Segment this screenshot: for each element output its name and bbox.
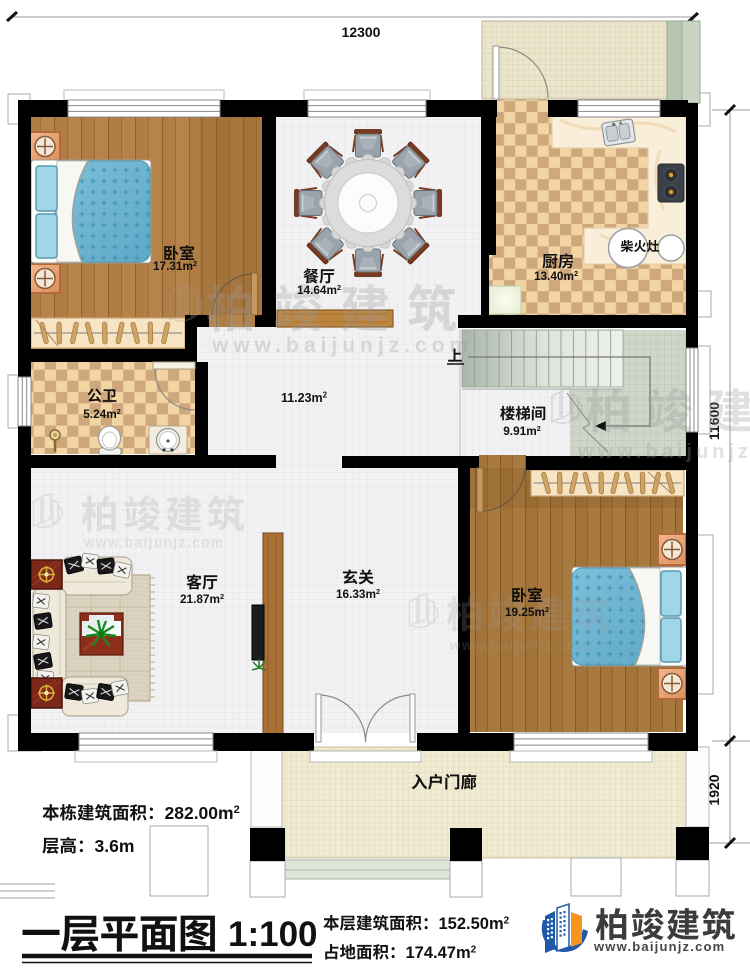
svg-text:19.25m2: 19.25m2 (505, 605, 549, 619)
svg-text:13.40m2: 13.40m2 (534, 269, 578, 283)
svg-text:9.91m2: 9.91m2 (503, 424, 541, 438)
svg-text:柏竣建筑: 柏竣建筑 (585, 373, 750, 442)
svg-text:楼梯间: 楼梯间 (500, 402, 547, 424)
svg-text:上: 上 (447, 345, 462, 366)
svg-text:12300: 12300 (342, 24, 381, 40)
svg-text:www.baijunjz.com: www.baijunjz.com (83, 535, 225, 550)
svg-text:占地面积：174.47m2: 占地面积：174.47m2 (323, 939, 477, 963)
svg-text:11.23m2: 11.23m2 (281, 391, 328, 405)
svg-text:公卫: 公卫 (87, 385, 117, 406)
svg-text:柏竣建筑: 柏竣建筑 (81, 484, 249, 539)
svg-text:客厅: 客厅 (186, 569, 218, 593)
svg-text:www.baijunjz.com: www.baijunjz.com (211, 334, 473, 357)
svg-text:1:100: 1:100 (228, 915, 318, 954)
svg-text:玄关: 玄关 (342, 564, 374, 588)
svg-text:柴火灶: 柴火灶 (620, 236, 659, 255)
svg-text:21.87m2: 21.87m2 (180, 592, 224, 606)
svg-text:柏竣建筑: 柏竣建筑 (206, 270, 474, 342)
svg-text:本栋建筑面积：282.00m2: 本栋建筑面积：282.00m2 (42, 800, 240, 825)
svg-text:14.64m2: 14.64m2 (297, 283, 341, 297)
svg-text:www.baijunjz.com: www.baijunjz.com (449, 638, 591, 653)
svg-text:层高：3.6m: 层高：3.6m (42, 833, 134, 858)
svg-text:16.33m2: 16.33m2 (336, 587, 380, 601)
svg-text:入户门廊: 入户门廊 (411, 769, 477, 793)
svg-text:一层平面图: 一层平面图 (21, 902, 217, 960)
svg-text:本层建筑面积：152.50m2: 本层建筑面积：152.50m2 (323, 910, 510, 934)
svg-text:www.baijunjz.com: www.baijunjz.com (577, 441, 750, 463)
svg-text:17.31m2: 17.31m2 (153, 259, 197, 273)
svg-text:5.24m2: 5.24m2 (83, 407, 121, 421)
svg-text:www.baijunjz.com: www.baijunjz.com (593, 939, 725, 954)
svg-text:卧室: 卧室 (511, 582, 543, 606)
